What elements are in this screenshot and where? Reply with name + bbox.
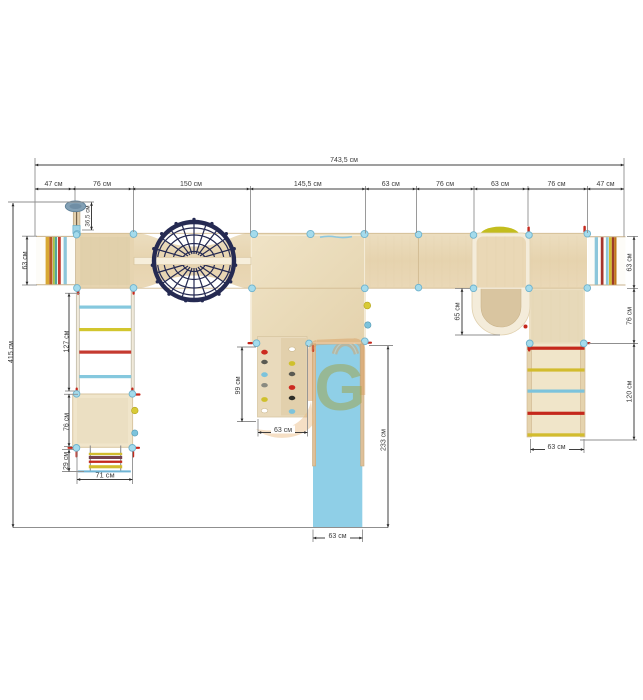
svg-text:145,5 см: 145,5 см — [294, 181, 322, 188]
svg-text:120 см: 120 см — [627, 380, 634, 402]
svg-text:63 см: 63 см — [22, 251, 29, 269]
svg-text:99 см: 99 см — [235, 376, 242, 394]
svg-text:63 см: 63 см — [547, 444, 565, 451]
svg-text:233 см: 233 см — [381, 429, 388, 451]
svg-text:743,5 см: 743,5 см — [330, 157, 358, 164]
svg-text:63 см: 63 см — [274, 427, 292, 434]
svg-text:71 см: 71 см — [95, 471, 114, 480]
svg-text:76 см: 76 см — [436, 181, 454, 188]
svg-text:65 см: 65 см — [455, 302, 462, 320]
svg-text:415 см: 415 см — [8, 341, 15, 363]
svg-text:G: G — [314, 350, 365, 424]
svg-text:127 см: 127 см — [64, 330, 71, 352]
svg-text:36,5 см: 36,5 см — [85, 205, 92, 226]
svg-text:63 см: 63 см — [627, 253, 634, 271]
svg-text:63 см: 63 см — [328, 533, 346, 540]
svg-text:76 см: 76 см — [64, 413, 71, 431]
svg-text:63 см: 63 см — [382, 181, 400, 188]
svg-text:47 см: 47 см — [596, 181, 614, 188]
svg-text:76 см: 76 см — [93, 181, 111, 188]
svg-text:47 см: 47 см — [44, 181, 62, 188]
svg-text:76 см: 76 см — [627, 307, 634, 325]
svg-text:29 см: 29 см — [63, 452, 70, 470]
svg-text:76 см: 76 см — [547, 181, 565, 188]
svg-text:63 см: 63 см — [491, 181, 509, 188]
svg-text:150 см: 150 см — [180, 181, 202, 188]
